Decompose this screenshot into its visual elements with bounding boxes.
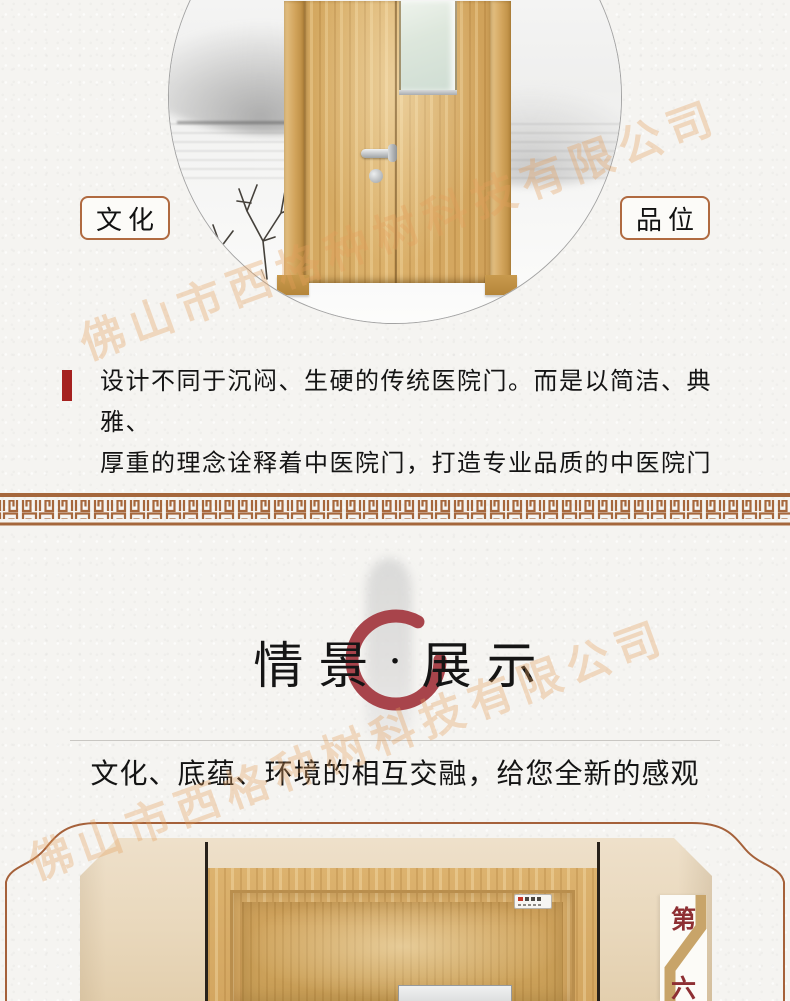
sign-dot: [533, 904, 536, 906]
door-frame-right: [491, 1, 511, 293]
sign-dot: [538, 904, 541, 906]
section-title: 情 景 · 展 示: [0, 626, 790, 698]
title-char-4: 示: [487, 626, 537, 698]
door-vision-window: [399, 1, 457, 93]
door-lock-cylinder: [369, 169, 383, 183]
sign-dot: [528, 904, 531, 906]
title-char-3: 展: [422, 626, 472, 698]
title-char-1: 情: [253, 626, 303, 698]
hero-circle-photo: [168, 0, 622, 324]
description-line-2: 厚重的理念诠释着中医院门，打造专业品质的中医院门: [100, 444, 752, 485]
showcase-photo: 第 六: [80, 838, 712, 1001]
door-frame-left: [284, 1, 304, 293]
tag-taste: 品位: [620, 196, 710, 240]
title-dot: ·: [383, 643, 406, 681]
tag-taste-label: 品位: [630, 200, 700, 237]
sign-text-mark: [525, 897, 529, 901]
description-line-1: 设计不同于沉闷、生硬的传统医院门。而是以简洁、典雅、: [100, 362, 752, 444]
section-divider-line: [70, 740, 720, 741]
sign-dot: [518, 904, 521, 906]
red-accent-bar: [62, 370, 72, 401]
door-leaf-seam: [395, 1, 397, 283]
door-frame-foot-right: [485, 275, 517, 295]
sign-red-mark: [518, 897, 523, 901]
tag-culture-label: 文化: [90, 200, 160, 237]
section-subtitle: 文化、底蕴、环境的相互交融，给您全新的感观: [0, 752, 790, 792]
badge-char-top: 第: [660, 900, 707, 936]
design-description: 设计不同于沉闷、生硬的传统医院门。而是以简洁、典雅、 厚重的理念诠释着中医院门，…: [62, 362, 752, 485]
door-handle-rose: [388, 144, 397, 162]
title-char-2: 景: [318, 626, 368, 698]
sign-dot: [523, 904, 526, 906]
door-sign-plate: [514, 894, 552, 909]
showcase-door-frame: [208, 868, 597, 1001]
wood-door: [304, 1, 491, 283]
door-frame-foot-left: [277, 275, 309, 295]
badge-banner: 第 六: [660, 895, 707, 1001]
tag-culture: 文化: [80, 196, 170, 240]
sign-text-mark: [531, 897, 535, 901]
badge-char-bottom: 六: [660, 969, 707, 1001]
window-sill: [399, 90, 457, 95]
promo-page: 文化 品位 设计不同于沉闷、生硬的传统医院门。而是以简洁、典雅、 厚重的理念诠释…: [0, 0, 790, 1001]
door-push-plate: [398, 985, 512, 1001]
sign-text-mark: [537, 897, 541, 901]
meander-border: [0, 493, 790, 526]
alcove-edge-right: [597, 842, 600, 1001]
